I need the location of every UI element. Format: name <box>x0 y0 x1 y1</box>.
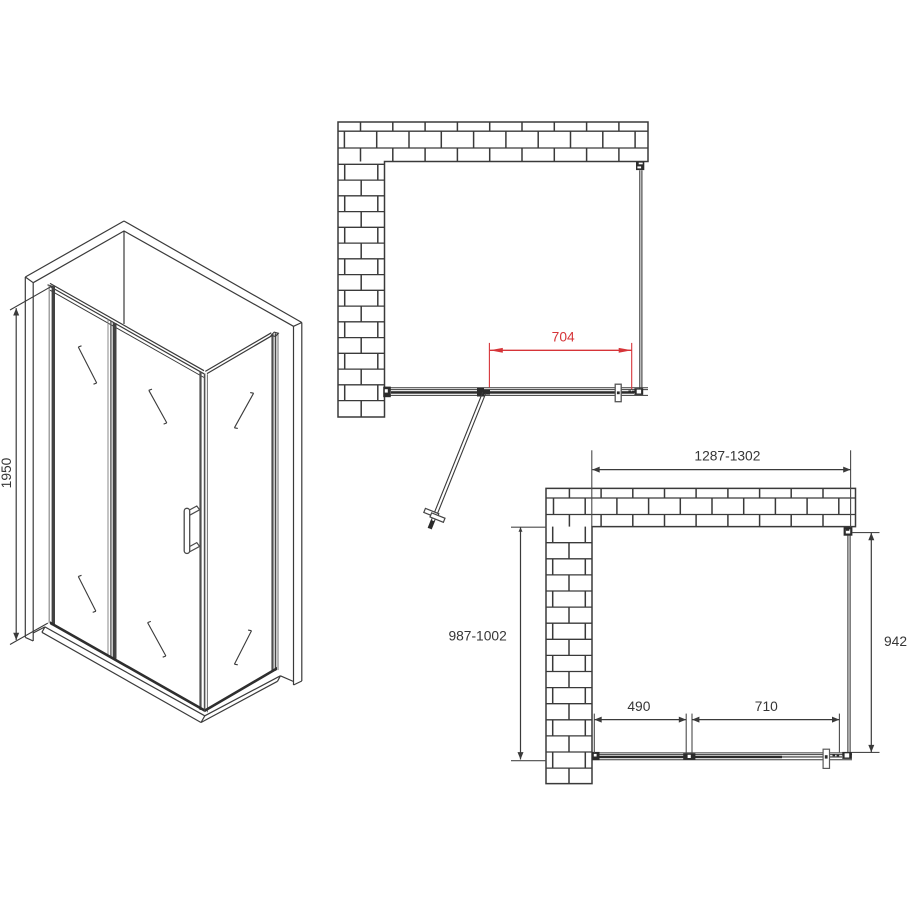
svg-text:490: 490 <box>627 699 650 714</box>
svg-text:704: 704 <box>552 329 575 344</box>
svg-text:942: 942 <box>884 634 907 649</box>
svg-text:1287-1302: 1287-1302 <box>694 448 760 463</box>
svg-text:710: 710 <box>755 699 778 714</box>
svg-text:1950: 1950 <box>0 457 14 488</box>
svg-text:987-1002: 987-1002 <box>448 628 506 643</box>
